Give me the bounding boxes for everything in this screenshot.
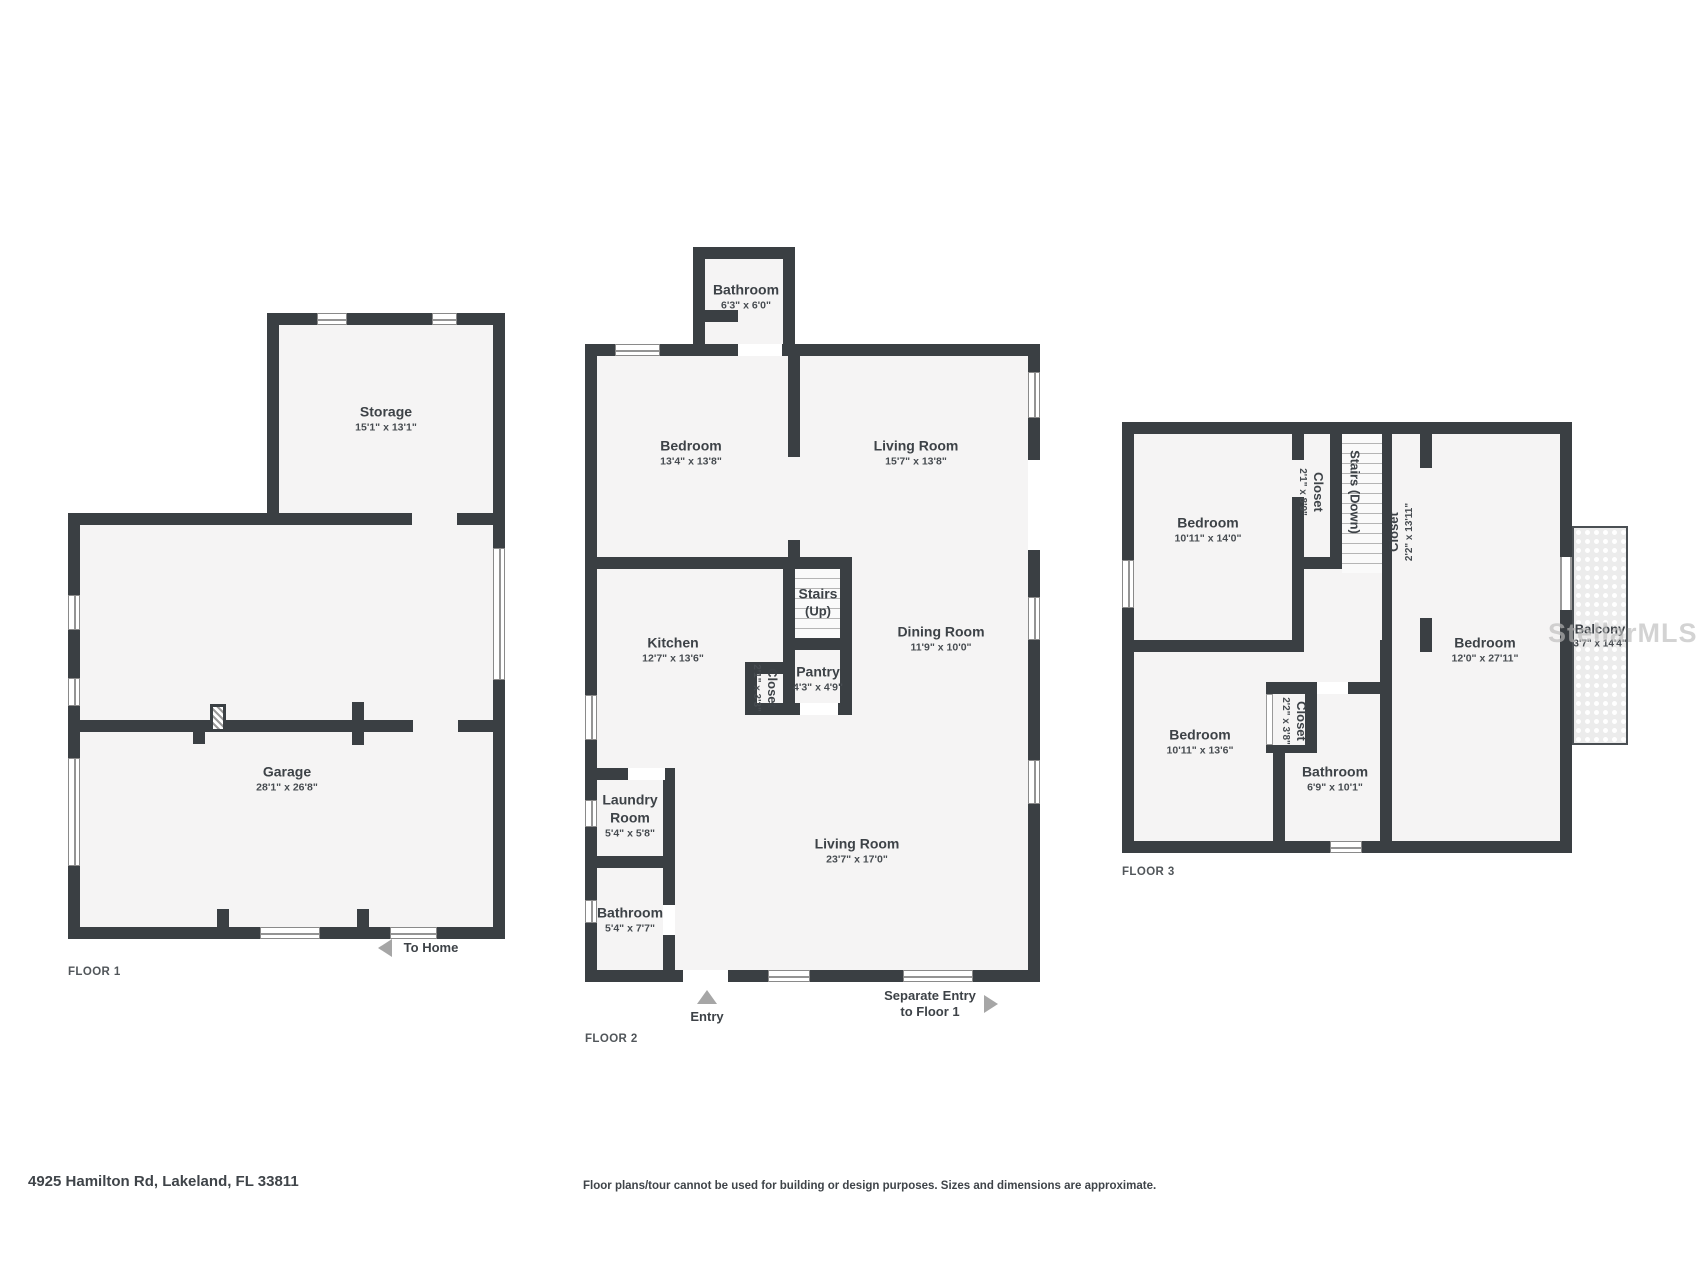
separate-entry-arrow-icon — [984, 995, 998, 1013]
wall — [663, 768, 675, 970]
wall — [357, 909, 369, 927]
room-label-living-upper: Living Room 15'7" x 13'8" — [874, 437, 959, 468]
wall — [1330, 422, 1342, 569]
room-dims: 23'7" x 17'0" — [815, 853, 900, 866]
room-dims: 6'9" x 10'1" — [1302, 781, 1368, 794]
wall — [493, 313, 505, 520]
wall — [783, 638, 852, 650]
room-label-closet-small: Closet 2'2" x 3'8" — [1279, 697, 1309, 745]
room-name: Closet — [1292, 697, 1309, 745]
wall — [585, 856, 675, 868]
disclaimer-text: Floor plans/tour cannot be used for buil… — [583, 1180, 1156, 1192]
window — [768, 970, 810, 982]
wall — [267, 313, 505, 325]
wall — [1273, 753, 1285, 841]
room-label-laundry: Laundry Room 5'4" x 5'8" — [602, 791, 657, 840]
floor-1-tag: FLOOR 1 — [68, 966, 121, 978]
wall — [1420, 618, 1432, 652]
room-name: Bedroom — [1452, 634, 1519, 652]
room-dims: 2'1" x 8'9" — [1296, 468, 1309, 516]
room-label-closet-top: Closet 2'1" x 8'9" — [1296, 468, 1326, 516]
separate-entry-line2: to Floor 1 — [884, 1004, 976, 1020]
wall — [68, 513, 412, 525]
room-name: Closet — [1309, 468, 1326, 516]
window — [1028, 760, 1040, 804]
wall — [693, 247, 705, 344]
floor-3-tag: FLOOR 3 — [1122, 866, 1175, 878]
separate-entry-label: Separate Entry to Floor 1 — [884, 988, 976, 1021]
room-label-kitchen: Kitchen 12'7" x 13'6" — [642, 634, 704, 665]
room-dims: 2'1" x 3'3" — [750, 664, 763, 712]
wall — [1122, 640, 1304, 652]
room-label-closet: Closet 2'1" x 3'3" — [750, 664, 780, 712]
room-name: Dining Room — [897, 623, 984, 641]
room-label-stairs-down: Stairs (Down) — [1346, 450, 1363, 534]
room-label-bathroom-top: Bathroom 6'3" x 6'0" — [713, 281, 779, 312]
door-opening — [738, 344, 782, 356]
room-name: Stairs — [799, 586, 838, 604]
room-name: Bedroom — [1175, 514, 1242, 532]
room-name: Living Room — [815, 835, 900, 853]
wall — [1266, 745, 1317, 753]
wall — [193, 720, 205, 744]
stellar-mls-watermark: StellarMLS — [1548, 618, 1697, 649]
property-address: 4925 Hamilton Rd, Lakeland, FL 33811 — [28, 1173, 299, 1190]
window — [585, 800, 597, 827]
room-name: Bedroom — [660, 437, 722, 455]
window — [1330, 841, 1362, 853]
room-name: Living Room — [874, 437, 959, 455]
room-label-bathroom3: Bathroom 6'9" x 10'1" — [1302, 763, 1368, 794]
window — [585, 695, 597, 740]
wall — [1380, 640, 1392, 841]
wall — [788, 344, 800, 457]
door-opening — [800, 703, 838, 715]
window — [1028, 597, 1040, 640]
entry-label: Entry — [690, 1009, 723, 1025]
room-dims: 10'11" x 13'6" — [1167, 744, 1234, 757]
wall — [217, 909, 229, 927]
room-dims: 13'4" x 13'8" — [660, 455, 722, 468]
interior-door — [210, 704, 226, 732]
room-label-bedroom-bottom: Bedroom 10'11" x 13'6" — [1167, 726, 1234, 757]
room-name: Garage — [256, 763, 318, 781]
room-dims: (Up) — [799, 604, 838, 621]
window — [68, 678, 80, 706]
door-opening — [628, 768, 665, 780]
window — [1122, 560, 1134, 608]
to-home-label: To Home — [404, 940, 459, 956]
room-label-garage: Garage 28'1" x 26'8" — [256, 763, 318, 794]
window — [390, 927, 437, 939]
room-label-living-lower: Living Room 23'7" x 17'0" — [815, 835, 900, 866]
room-name: Stairs (Down) — [1346, 450, 1363, 534]
room-label-bathroom-lower: Bathroom 5'4" x 7'7" — [597, 904, 663, 935]
wall — [1266, 682, 1317, 694]
door-opening — [663, 905, 675, 935]
room-name: Bathroom — [713, 281, 779, 299]
wall — [1122, 422, 1134, 853]
separate-entry-line1: Separate Entry — [884, 988, 976, 1004]
room-dims: 15'7" x 13'8" — [874, 455, 959, 468]
room-dims: 12'7" x 13'6" — [642, 652, 704, 665]
room-dims: 4'3" x 4'9" — [793, 681, 843, 694]
wall — [1292, 497, 1304, 652]
wall — [267, 313, 279, 520]
window — [493, 548, 505, 680]
room-dims: 11'9" x 10'0" — [897, 641, 984, 654]
room-dims: 5'4" x 5'8" — [602, 827, 657, 840]
window — [68, 595, 80, 630]
wall — [585, 557, 852, 569]
floor-2-tag: FLOOR 2 — [585, 1033, 638, 1045]
wall — [1292, 434, 1304, 460]
window — [260, 927, 320, 939]
room-name: Laundry — [602, 791, 657, 809]
wall — [783, 247, 795, 344]
wall — [458, 720, 493, 732]
floorplan-canvas: Storage 15'1" x 13'1" Garage 28'1" x 26'… — [0, 0, 1697, 1272]
room-name: Bathroom — [1302, 763, 1368, 781]
room-label-dining: Dining Room 11'9" x 10'0" — [897, 623, 984, 654]
room-label-bedroom: Bedroom 13'4" x 13'8" — [660, 437, 722, 468]
room-name: Pantry — [793, 663, 843, 681]
room-dims: 2'2" x 3'8" — [1279, 697, 1292, 745]
door-opening — [683, 970, 728, 982]
wall — [352, 702, 364, 745]
room-label-storage: Storage 15'1" x 13'1" — [355, 403, 417, 434]
room-dims: 6'3" x 6'0" — [713, 299, 779, 312]
room-dims: 5'4" x 7'7" — [597, 922, 663, 935]
window — [68, 758, 80, 866]
window — [903, 970, 973, 982]
wall — [693, 247, 795, 259]
room-dims: 10'11" x 14'0" — [1175, 532, 1242, 545]
room-label-closet-long: Closet 2'2" x 13'11" — [1386, 503, 1416, 561]
wall — [1028, 344, 1040, 982]
room-label-pantry: Pantry 4'3" x 4'9" — [793, 663, 843, 694]
to-home-arrow-icon — [378, 939, 392, 957]
room-name: Bathroom — [597, 904, 663, 922]
balcony-door — [1560, 557, 1572, 610]
entry-arrow-icon — [697, 990, 717, 1004]
room-dims: 15'1" x 13'1" — [355, 421, 417, 434]
window — [585, 900, 597, 923]
wall — [1122, 422, 1572, 434]
room-name: Kitchen — [642, 634, 704, 652]
room-dims: 28'1" x 26'8" — [256, 781, 318, 794]
wall — [1420, 422, 1432, 468]
wall — [585, 344, 597, 982]
room-label-stairs-up: Stairs (Up) — [799, 586, 838, 621]
window — [615, 344, 660, 356]
room-name: Closet — [1386, 503, 1403, 561]
window — [432, 313, 457, 325]
room-label-bedroom-right: Bedroom 12'0" x 27'11" — [1452, 634, 1519, 665]
window — [317, 313, 347, 325]
room-name: Room — [602, 809, 657, 827]
closet-opening — [1266, 694, 1273, 745]
window — [1028, 372, 1040, 418]
door-opening — [1028, 460, 1040, 550]
room-dims: 12'0" x 27'11" — [1452, 652, 1519, 665]
room-name: Closet — [763, 664, 780, 712]
door-opening — [1317, 682, 1348, 694]
room-name: Bedroom — [1167, 726, 1234, 744]
room-name: Storage — [355, 403, 417, 421]
room-dims: 2'2" x 13'11" — [1403, 503, 1416, 561]
room-label-bedroom-top: Bedroom 10'11" x 14'0" — [1175, 514, 1242, 545]
